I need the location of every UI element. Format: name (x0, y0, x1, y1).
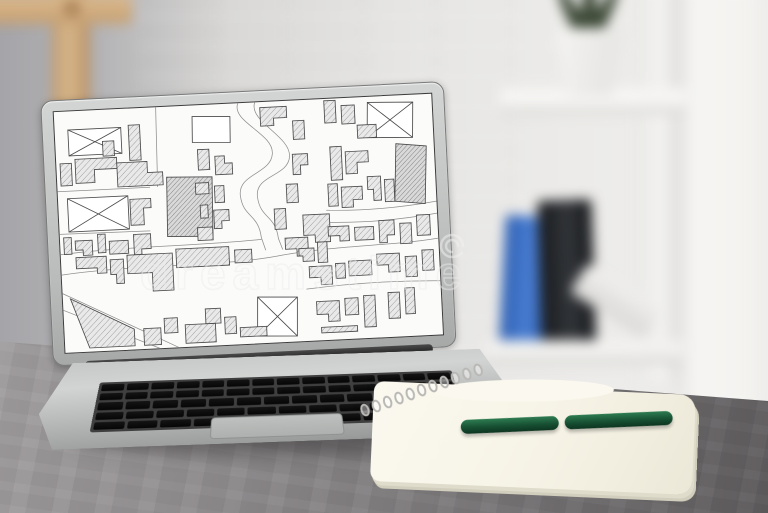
map-building (377, 253, 401, 273)
map-building (324, 100, 336, 123)
map-building (349, 260, 372, 276)
keyboard-key (99, 393, 123, 401)
map-building (214, 209, 230, 228)
map-building (164, 318, 178, 333)
map-building (176, 247, 230, 268)
laptop-lid (40, 81, 457, 366)
map-building (367, 176, 381, 201)
map-building (422, 250, 434, 271)
keyboard-key (347, 393, 373, 401)
map-building (274, 208, 286, 229)
keyboard-key (303, 386, 326, 394)
keyboard-key (252, 379, 274, 387)
keyboard-key (277, 378, 300, 386)
keyboard-key (126, 410, 155, 418)
spiral-notebook (370, 381, 696, 495)
stock-photo-laptop-cadastral-map: dreamstime (0, 0, 768, 513)
plant-pot (548, 28, 630, 96)
map-building (341, 186, 363, 207)
keyboard-key (227, 379, 249, 387)
map-building (392, 142, 429, 205)
keyboard-key (101, 384, 125, 392)
map-building (379, 220, 395, 243)
map-building (200, 205, 208, 218)
keyboard-key (201, 389, 224, 397)
map-building (286, 184, 298, 203)
keyboard-key (97, 402, 123, 410)
keyboard-key (181, 399, 206, 407)
map-building (60, 163, 72, 186)
map-building (133, 234, 151, 255)
keyboard-key (402, 373, 426, 381)
map-building (293, 120, 305, 139)
keyboard-key (217, 407, 245, 415)
spiral-coil (393, 390, 406, 405)
map-building (75, 240, 93, 256)
keyboard-key (278, 405, 306, 413)
bright-right-wall (674, 0, 756, 408)
keyboard-key (177, 381, 200, 389)
spiral-coil (381, 394, 394, 409)
map-building (328, 184, 339, 207)
keyboard-key (248, 406, 276, 414)
map-building (405, 256, 417, 277)
map-building (292, 154, 308, 175)
keyboard-key (150, 391, 173, 399)
map-road (58, 187, 150, 192)
spiral-coil (449, 370, 462, 385)
keyboard-key (252, 388, 275, 396)
keyboard-key (126, 383, 149, 391)
map-building (75, 157, 118, 183)
keyboard-key (202, 380, 225, 388)
keyboard-key (95, 412, 124, 420)
map-building (384, 179, 395, 202)
map-building (109, 240, 129, 254)
map-building (317, 242, 327, 263)
map-building (309, 266, 333, 286)
map-building (197, 149, 209, 170)
keyboard-key (209, 398, 234, 406)
keyboard-key (302, 377, 325, 385)
map-building (335, 263, 345, 278)
map-building (330, 146, 343, 180)
map-building (225, 317, 237, 334)
keyboard-key (352, 375, 375, 383)
keyboard-key (125, 401, 151, 409)
map-building (185, 323, 216, 343)
spiral-coil (415, 382, 428, 397)
map-building (191, 115, 231, 145)
map-building (299, 248, 315, 262)
spiral-coil (426, 378, 439, 393)
keyboard-key (160, 419, 191, 428)
map-building (355, 226, 375, 240)
laptop-trackpad (210, 413, 346, 439)
keyboard-key (156, 409, 184, 417)
map-building (117, 161, 163, 187)
map-building (345, 151, 369, 174)
spiral-coil (460, 366, 473, 381)
map-building (364, 295, 377, 327)
map-building (98, 234, 106, 253)
map-building (215, 155, 233, 174)
map-building (195, 183, 209, 195)
keyboard-key (153, 400, 179, 408)
map-building (322, 326, 358, 333)
keyboard-key (127, 420, 158, 429)
keyboard-key (319, 394, 345, 402)
shelf-board-lower (486, 340, 682, 364)
map-building (345, 298, 359, 315)
spiral-coil (438, 374, 451, 389)
map-building (416, 214, 430, 235)
map-building (357, 124, 377, 138)
map-building (214, 186, 224, 203)
map-building (388, 292, 401, 318)
map-building (317, 301, 341, 322)
keyboard-key (277, 387, 300, 395)
keyboard-key (187, 408, 215, 416)
map-building (130, 198, 152, 225)
map-building (197, 227, 213, 241)
map-building (240, 326, 267, 337)
map-building (64, 238, 72, 255)
keyboard-key (227, 388, 250, 396)
keyboard-key (328, 385, 351, 393)
keyboard-key (93, 421, 125, 430)
keyboard-key (151, 382, 174, 390)
keyboard-key (125, 392, 149, 400)
map-building (405, 288, 416, 314)
map-building (328, 226, 349, 242)
laptop-screen (53, 93, 444, 354)
keyboard-key (236, 397, 261, 405)
map-building (205, 308, 221, 324)
keyboard-key (176, 390, 199, 398)
cadastral-map (54, 94, 443, 353)
map-building (235, 249, 253, 263)
keyboard-key (327, 376, 350, 384)
map-building (260, 106, 287, 126)
map-building (400, 223, 412, 244)
keyboard-key (264, 396, 289, 404)
map-building (128, 125, 141, 161)
map-building (341, 105, 355, 124)
keyboard-key (309, 404, 337, 412)
map-building (127, 253, 174, 292)
wooden-frame-knob (64, 0, 80, 16)
keyboard-key (292, 395, 317, 403)
map-building (110, 259, 124, 284)
spiral-coil (370, 398, 383, 413)
map-building (144, 328, 162, 345)
map-building (102, 141, 114, 156)
spiral-coil (404, 386, 417, 401)
